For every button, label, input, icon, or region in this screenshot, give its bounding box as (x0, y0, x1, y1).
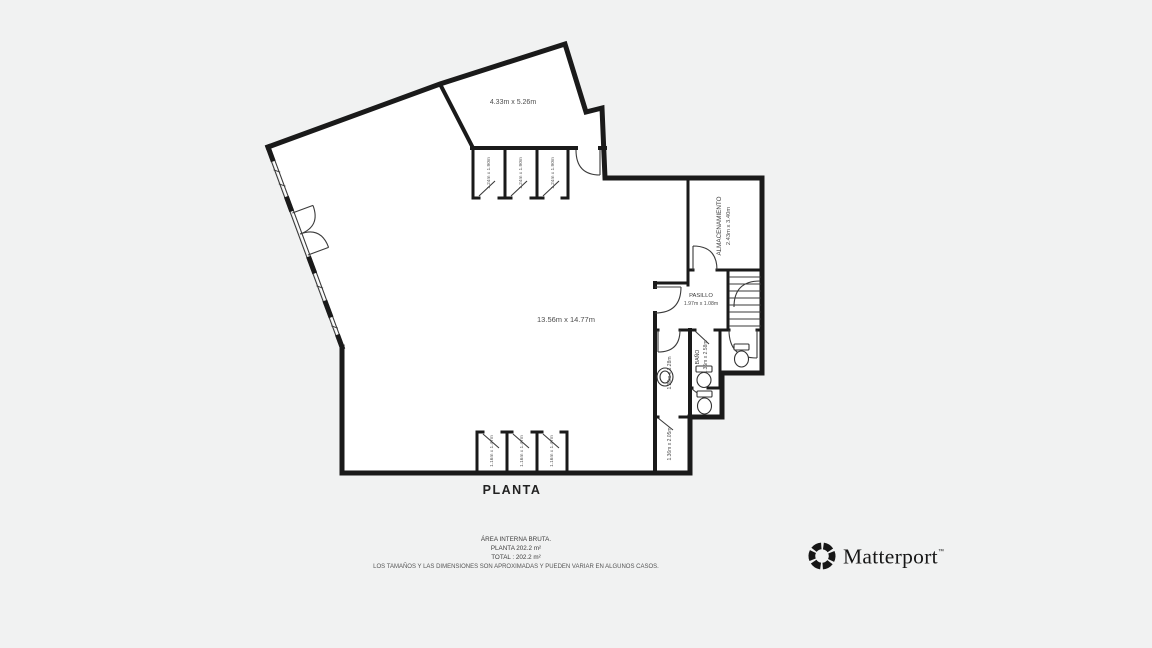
main-room-dims-label: 13.56m x 14.77m (537, 315, 595, 324)
pasillo-label: PASILLO (689, 293, 713, 299)
stall-dims-label: 1.16m x 1.47m (519, 435, 525, 467)
footer-area-total: TOTAL : 202.2 m² (491, 554, 541, 561)
floor-plan-svg: 4.33m x 5.26m 13.56m x 14.77m ALMACENAMI… (0, 0, 1152, 648)
plan-title: PLANTA (483, 483, 542, 497)
bathroom-dims-label: 1.26m x 3.28m (667, 356, 673, 389)
storage-room-dims-label: 1.36m x 2.05m (667, 427, 673, 460)
footer-area-planta: PLANTA 202.2 m² (491, 545, 541, 552)
top-room-dims-label: 4.33m x 5.26m (490, 99, 536, 106)
almacenamiento-dims-label: 2.43m x 3.40m (726, 207, 732, 246)
matterport-trademark: ™ (938, 548, 944, 555)
toilet-tank (734, 344, 749, 350)
stall-dims-label: 1.24m x 1.90m (550, 157, 556, 189)
footer-disclaimer: LOS TAMAÑOS Y LAS DIMENSIONES SON APROXI… (373, 563, 659, 570)
stall-dims-label: 1.16m x 1.47m (549, 435, 555, 467)
toilet-bowl (698, 398, 712, 414)
matterport-wordmark: Matterport (843, 545, 938, 569)
stall-dims-label: 1.24m x 1.90m (486, 157, 492, 189)
footer-summary: ÁREA INTERNA BRUTA. PLANTA 202.2 m² TOTA… (373, 534, 659, 570)
matterport-logo-icon (803, 538, 840, 573)
stall-dims-label: 1.16m x 1.47m (489, 435, 495, 467)
bano-dims-label: 1.35m x 2.58m (703, 340, 709, 373)
bano-label: BAÑO (694, 350, 701, 365)
floor-plan-page: 4.33m x 5.26m 13.56m x 14.77m ALMACENAMI… (0, 0, 1152, 648)
pasillo-dims-label: 1.97m x 1.08m (684, 301, 718, 307)
toilet-bowl (697, 373, 711, 388)
matterport-logo: Matterport ™ (803, 538, 944, 573)
toilet-bowl (735, 351, 749, 367)
footer-area-heading: ÁREA INTERNA BRUTA. (481, 534, 551, 543)
almacenamiento-label: ALMACENAMIENTO (716, 196, 723, 255)
stall-dims-label: 1.24m x 1.90m (518, 157, 524, 189)
toilet-tank (697, 391, 712, 397)
